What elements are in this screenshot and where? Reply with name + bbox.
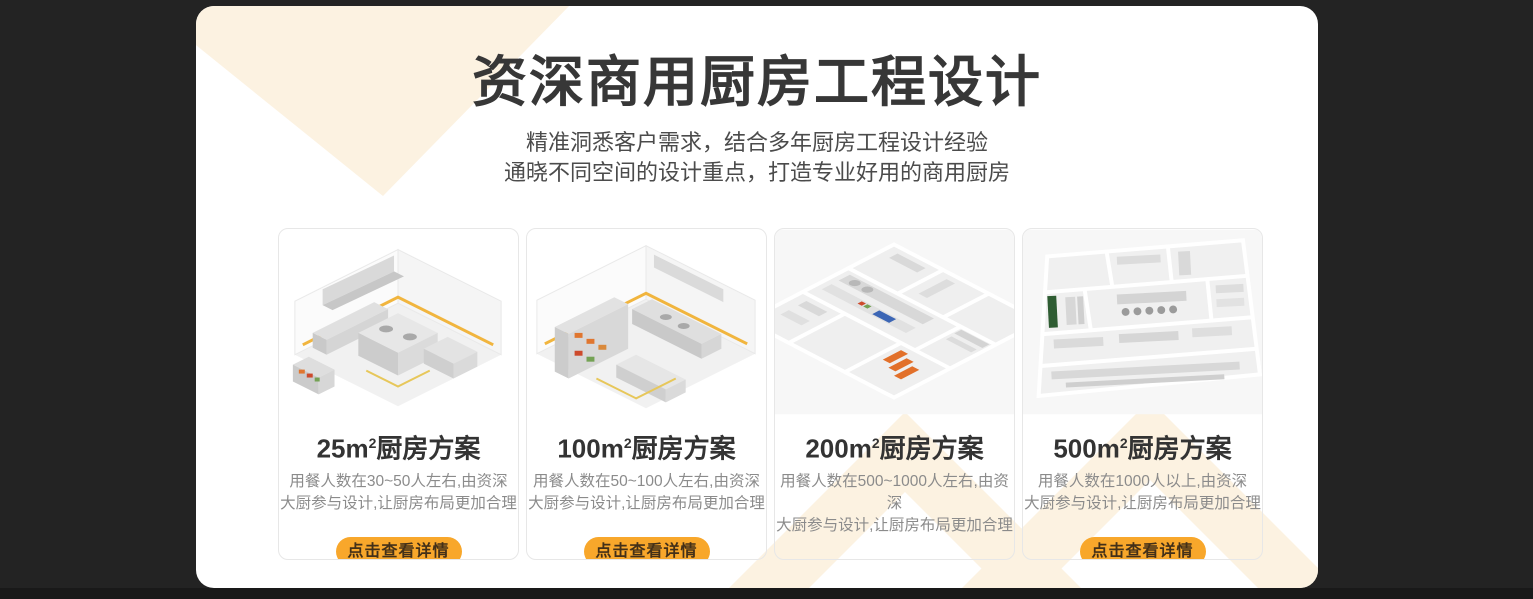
plan-card-200m2: 200m2厨房方案 用餐人数在500~1000人左右,由资深 大厨参与设计,让厨… (774, 228, 1015, 560)
kitchen-render-500m2 (1023, 229, 1262, 415)
view-details-button[interactable]: 点击查看详情 (1080, 537, 1206, 560)
card-description: 用餐人数在1000人以上,由资深 大厨参与设计,让厨房布局更加合理 (1023, 471, 1262, 515)
card-description: 用餐人数在30~50人左右,由资深 大厨参与设计,让厨房布局更加合理 (279, 471, 518, 515)
plan-card-25m2: 25m2厨房方案 用餐人数在30~50人左右,由资深 大厨参与设计,让厨房布局更… (278, 228, 519, 560)
card-description: 用餐人数在50~100人左右,由资深 大厨参与设计,让厨房布局更加合理 (527, 471, 766, 515)
kitchen-render-100m2 (527, 229, 766, 415)
view-details-button[interactable]: 点击查看详情 (584, 537, 710, 560)
card-title: 500m2厨房方案 (1023, 428, 1262, 464)
plan-card-100m2: 100m2厨房方案 用餐人数在50~100人左右,由资深 大厨参与设计,让厨房布… (526, 228, 767, 560)
plan-card-500m2: 500m2厨房方案 用餐人数在1000人以上,由资深 大厨参与设计,让厨房布局更… (1022, 228, 1263, 560)
section-header: 资深商用厨房工程设计 精准洞悉客户需求，结合多年厨房工程设计经验 通晓不同空间的… (196, 50, 1318, 188)
kitchen-render-200m2 (775, 229, 1014, 415)
subtitle-line-2: 通晓不同空间的设计重点，打造专业好用的商用厨房 (196, 158, 1318, 188)
plan-cards-row: 25m2厨房方案 用餐人数在30~50人左右,由资深 大厨参与设计,让厨房布局更… (278, 228, 1263, 560)
card-title: 25m2厨房方案 (279, 428, 518, 464)
view-details-button[interactable]: 点击查看详情 (336, 537, 462, 560)
card-title: 200m2厨房方案 (775, 428, 1014, 464)
card-description: 用餐人数在500~1000人左右,由资深 大厨参与设计,让厨房布局更加合理 (775, 471, 1014, 537)
page-title: 资深商用厨房工程设计 (196, 50, 1318, 114)
content-panel: 资深商用厨房工程设计 精准洞悉客户需求，结合多年厨房工程设计经验 通晓不同空间的… (196, 6, 1318, 588)
view-details-button[interactable]: 点击查看详情 (832, 559, 958, 560)
section-subtitle: 精准洞悉客户需求，结合多年厨房工程设计经验 通晓不同空间的设计重点，打造专业好用… (196, 128, 1318, 188)
card-title: 100m2厨房方案 (527, 428, 766, 464)
next-section-strip (0, 588, 1533, 599)
page-background: 资深商用厨房工程设计 精准洞悉客户需求，结合多年厨房工程设计经验 通晓不同空间的… (0, 0, 1533, 599)
subtitle-line-1: 精准洞悉客户需求，结合多年厨房工程设计经验 (196, 128, 1318, 158)
kitchen-render-25m2 (279, 229, 518, 415)
